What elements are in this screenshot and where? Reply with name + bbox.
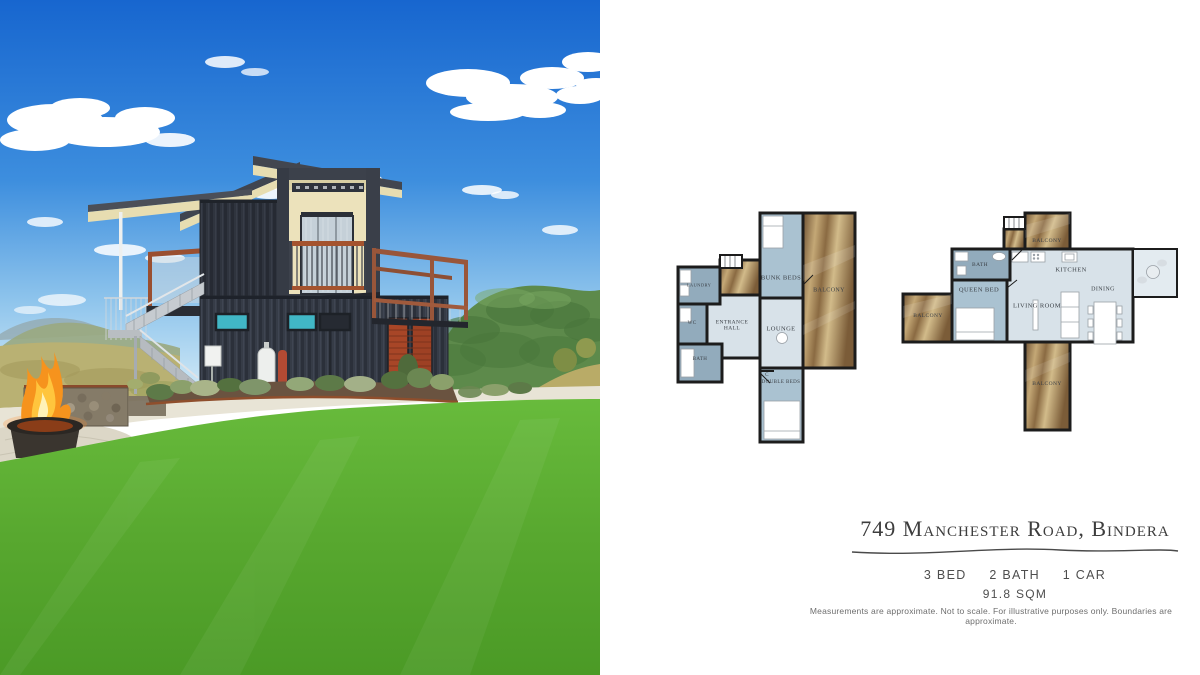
room-label-double-beds: DOUBLE BEDS: [762, 380, 801, 386]
room-label-laundry: LAUNDRY: [687, 282, 712, 287]
property-photo: [0, 0, 600, 675]
room-label-kitchen: KITCHEN: [1055, 266, 1086, 273]
plan1-stairs: [720, 255, 742, 268]
room-label-wc: WC: [688, 321, 697, 327]
real-estate-flyer: LAUNDRY WC BATH ENTRANCE HALL LOUNGE BUN…: [0, 0, 1200, 675]
window-dark: [320, 314, 350, 330]
room-label-entrance-hall: ENTRANCE HALL: [715, 320, 749, 333]
room-label-cupboard: C: [765, 373, 769, 379]
room-label-bath: BATH: [693, 357, 708, 363]
awning-post: [119, 212, 123, 310]
spec-cars: 1 CAR: [1063, 568, 1106, 582]
disclaimer-text: Measurements are approximate. Not to sca…: [786, 606, 1196, 626]
room-label-queen-bed: QUEEN BED: [959, 286, 999, 293]
floor-plan-1: LAUNDRY WC BATH ENTRANCE HALL LOUNGE BUN…: [660, 205, 860, 450]
spec-beds: 3 BED: [924, 568, 967, 582]
room-label-bath-2: BATH: [972, 262, 988, 268]
wavy-divider: [850, 545, 1180, 557]
spec-baths: 2 BATH: [989, 568, 1040, 582]
window-teal-2: [288, 314, 316, 330]
floor-plan-2: BALCONY BATH QUEEN BED LIVING ROOM KITCH…: [900, 210, 1190, 435]
floor-plan-1-drawing: [660, 205, 860, 450]
listing-address: 749 Manchester Road, Bindera: [810, 516, 1200, 542]
floor-plan-panel: LAUNDRY WC BATH ENTRANCE HALL LOUNGE BUN…: [600, 0, 1200, 675]
listing-specs: 3 BED 2 BATH 1 CAR: [810, 568, 1200, 582]
listing-info: 749 Manchester Road, Bindera 3 BED 2 BAT…: [810, 516, 1200, 601]
room-label-living-room: LIVING ROOM: [1013, 302, 1061, 309]
photo-illustration: [0, 0, 600, 675]
listing-area: 91.8 SQM: [810, 587, 1200, 601]
room-label-lounge: LOUNGE: [766, 325, 795, 332]
room-label-dining: DINING: [1091, 287, 1115, 294]
room-label-balcony-1: BALCONY: [813, 288, 845, 295]
upper-balcony: [277, 168, 380, 300]
room-label-balcony-left: BALCONY: [913, 313, 942, 319]
room-label-balcony-bottom: BALCONY: [1032, 381, 1061, 387]
window-teal-1: [216, 314, 248, 330]
meter-box: [205, 346, 221, 366]
room-label-balcony-top: BALCONY: [1032, 238, 1061, 244]
plan2-stairs: [1004, 217, 1025, 229]
room-label-bunk-beds: BUNK BEDS: [761, 274, 801, 281]
